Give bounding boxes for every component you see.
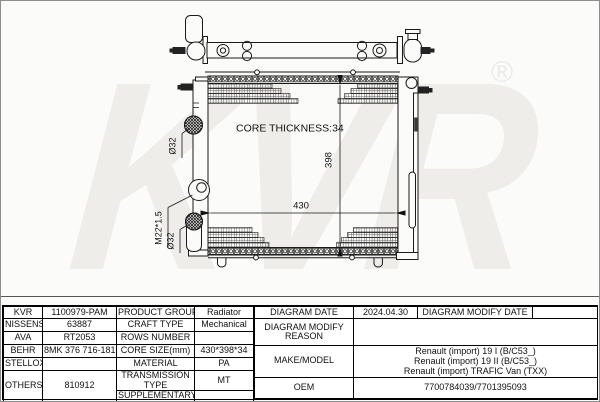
property-value-cell [195, 391, 254, 402]
make-model-line: Renault (import) 19 I (B/C53_) [355, 346, 596, 356]
part-number-cell: 8MK 376 716-181 [43, 345, 117, 358]
inlet-diameter-label: Ø32 [168, 137, 178, 154]
right-tank-foot [397, 253, 419, 260]
brand-cell: BEHR [4, 345, 43, 358]
make-model-line: Renault (import) TRAFIC Van (TXX) [355, 366, 596, 376]
modify-date-value [533, 307, 598, 319]
property-label-cell: CORE SIZE(mm) [117, 345, 195, 358]
brand-cell: OTHERS [4, 371, 43, 402]
left-tank-flange [196, 77, 209, 81]
front-view [168, 70, 433, 267]
property-label-cell: CRAFT TYPE [117, 319, 195, 332]
make-model-label: MAKE/MODEL [255, 345, 354, 377]
modify-reason-value [354, 319, 598, 346]
inlet-nipple-top-view [173, 47, 186, 54]
mount-pin [374, 258, 382, 267]
core-thickness-label: CORE THICKNESS:34 [236, 123, 344, 135]
spec-table: KVR 1100979-PAM PRODUCT GROUP Radiator N… [2, 305, 598, 400]
inlet-leader [182, 129, 189, 159]
diagram-info-table: DIAGRAM DATE 2024.04.30 DIAGRAM MODIFY D… [254, 306, 598, 399]
right-flange [398, 37, 403, 64]
part-number-cell: 810912 [43, 371, 117, 402]
inlet-port [185, 116, 203, 134]
top-view [170, 16, 435, 64]
part-number-cell: RT2053 [43, 332, 117, 345]
property-value-cell: Radiator [195, 307, 254, 319]
property-value-cell: 430*398*34 [195, 345, 254, 358]
mount-pin [218, 258, 226, 267]
oem-label: OEM [255, 377, 354, 398]
fin-hatch-top-right [338, 84, 398, 104]
bottom-tab-band [208, 248, 398, 256]
property-value-cell: Mechanical [195, 319, 254, 332]
outlet-port [186, 213, 203, 230]
property-label-cell: TRANSMISSION TYPE [117, 371, 195, 391]
radiator-technical-drawing: CORE THICKNESS:34 430 398 Ø32 M22*1.5 Ø3… [0, 0, 600, 296]
filler-neck [186, 16, 203, 43]
brand-cell: AVA [4, 332, 43, 345]
diagram-date-value: 2024.04.30 [354, 307, 418, 319]
brand-cell: NISSENS [4, 319, 43, 332]
drain-thread-label: M22*1.5 [154, 211, 164, 245]
property-value-cell [195, 332, 254, 345]
property-label-cell: MATERIAL [117, 358, 195, 371]
cross-reference-table: KVR 1100979-PAM PRODUCT GROUP Radiator N… [3, 306, 254, 402]
property-label-cell: SUPPLEMENTARY [117, 391, 195, 402]
fin-hatch-top-left [208, 84, 298, 104]
top-tab-band [208, 76, 398, 84]
modify-reason-label: DIAGRAM MODIFY REASON [255, 319, 354, 346]
property-value-cell: MT [195, 371, 254, 391]
filler-cap [187, 42, 205, 60]
drain-boss [189, 180, 210, 201]
screw-mark [351, 70, 356, 75]
oem-value: 7700784039/7701395093 [354, 377, 598, 398]
width-dimension-label: 430 [293, 201, 309, 212]
screw-mark [254, 255, 259, 260]
property-label-cell: PRODUCT GROUP [117, 307, 195, 319]
tank-bar [207, 43, 397, 59]
modify-date-label: DIAGRAM MODIFY DATE [418, 307, 533, 319]
inlet-nipple [181, 84, 194, 91]
bracket-slot [409, 172, 416, 228]
outlet-nipple [418, 87, 429, 94]
fin-hatch-bottom-left [208, 228, 269, 248]
brand-cell: KVR [4, 307, 43, 319]
part-number-cell: 1100979-PAM [43, 307, 117, 319]
property-value-cell: PA [195, 358, 254, 371]
fin-hatch-bottom-right [337, 228, 398, 248]
diagram-date-label: DIAGRAM DATE [255, 307, 354, 319]
right-fitting-cap [406, 30, 421, 34]
height-dimension-label: 398 [324, 152, 335, 168]
part-number-cell [43, 358, 117, 371]
screw-mark [350, 255, 355, 260]
right-tank-cap [406, 78, 417, 89]
make-model-value: Renault (import) 19 I (B/C53_) Renault (… [354, 345, 598, 377]
diagram-table-divider [0, 296, 600, 297]
property-label-cell: ROWS NUMBER [117, 332, 195, 345]
make-model-line: Renault (import) 19 II (B/C53_) [355, 356, 596, 366]
screw-mark [255, 70, 260, 75]
right-fitting-body [404, 39, 422, 62]
part-number-cell: 63887 [43, 319, 117, 332]
brand-cell: STELLOX [4, 358, 43, 371]
outlet-nipple-top-view [421, 47, 431, 54]
outlet-diameter-label: Ø32 [166, 232, 176, 249]
